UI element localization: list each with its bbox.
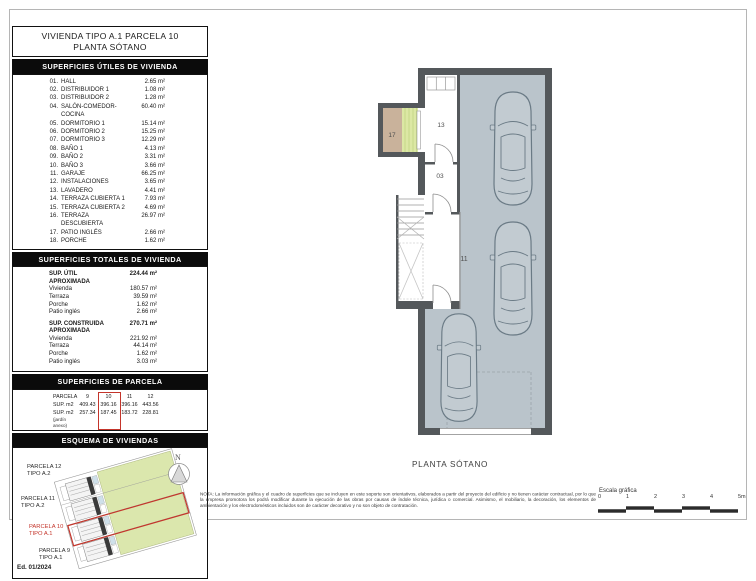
surface-row-value: 7.93 m² xyxy=(129,195,165,203)
surface-row-label: DORMITORIO 2 xyxy=(61,128,129,136)
surface-row-value: 15.14 m² xyxy=(129,120,165,128)
surface-row-label: DORMITORIO 1 xyxy=(61,120,129,128)
surface-row: 16.TERRAZA DESCUBIERTA26.97 m² xyxy=(45,212,165,229)
surface-row: 01.HALL2.65 m² xyxy=(45,78,165,86)
scale-bar xyxy=(598,505,746,514)
scale-tick: 5m xyxy=(738,494,746,500)
laundry-fixture xyxy=(427,77,455,90)
scale-tick: 1 xyxy=(626,494,629,500)
surface-row-label: LAVADERO xyxy=(61,187,129,195)
total-sub-row: Porche1.62 m² xyxy=(49,351,157,359)
parcel-data-row: SUP. m2409.43396.16396.16443.56 xyxy=(53,401,207,409)
surface-row: 12.INSTALACIONES3.65 m² xyxy=(45,178,165,186)
surface-row: 10.BAÑO 33.66 m² xyxy=(45,162,165,170)
surface-row-label: BAÑO 2 xyxy=(61,153,129,161)
surface-row-number: 05. xyxy=(45,120,58,128)
surface-row-value: 60.40 m² xyxy=(129,103,165,120)
window xyxy=(417,111,421,149)
graphic-scale: Escala gráfica 012345m xyxy=(598,488,748,516)
surface-row: 18.PORCHE1.62 m² xyxy=(45,237,165,245)
surface-row-label: PORCHE xyxy=(61,237,129,245)
surface-row: 07.DORMITORIO 312.29 m² xyxy=(45,136,165,144)
scale-tick: 3 xyxy=(682,494,685,500)
total-sub-row: Terraza44.14 m² xyxy=(49,343,157,351)
room-11-label: 11 xyxy=(460,256,467,263)
surface-row-value: 4.41 m² xyxy=(129,187,165,195)
surface-row-value: 1.08 m² xyxy=(129,86,165,94)
parcel-value: 396.16 xyxy=(119,403,140,409)
parcel-value: 257.34 xyxy=(77,411,98,417)
laundry-strip-floor xyxy=(402,108,418,152)
total-group-header-row: SUP. ÚTIL APROXIMADA224.44 m² xyxy=(49,271,157,286)
parcel-12-label: PARCELA 12TIPO A.2 xyxy=(27,464,61,477)
left-panel: VIVIENDA TIPO A.1 PARCELA 10 PLANTA SÓTA… xyxy=(12,26,208,579)
highlighted-parcel-box xyxy=(98,392,121,430)
surface-row-number: 03. xyxy=(45,94,58,102)
stair-treads xyxy=(397,199,424,235)
surface-row: 08.BAÑO 14.13 m² xyxy=(45,145,165,153)
total-sub-row: Vivienda180.57 m² xyxy=(49,286,157,294)
surface-row-label: TERRAZA CUBIERTA 1 xyxy=(61,195,129,203)
scheme-header: ESQUEMA DE VIVIENDAS xyxy=(12,433,208,448)
surface-row-value: 3.31 m² xyxy=(129,153,165,161)
surface-row: 17.PATIO INGLÉS2.66 m² xyxy=(45,229,165,237)
surface-row: 13.LAVADERO4.41 m² xyxy=(45,187,165,195)
surface-row-value: 1.62 m² xyxy=(129,237,165,245)
surface-row-label: DISTRIBUIDOR 1 xyxy=(61,86,129,94)
patio-ingles-floor xyxy=(383,108,402,152)
surface-row-number: 12. xyxy=(45,178,58,186)
total-surfaces-table: SUP. ÚTIL APROXIMADA224.44 m²Vivienda180… xyxy=(12,266,208,372)
document-subtitle: PLANTA SÓTANO xyxy=(13,42,207,53)
stair-cross xyxy=(397,217,424,239)
parcel-11-label: PARCELA 11TIPO A.2 xyxy=(21,496,55,509)
surface-row-number: 17. xyxy=(45,229,58,237)
surface-row-number: 01. xyxy=(45,78,58,86)
parcel-value: 443.56 xyxy=(140,403,161,409)
total-sub-row: Patio inglés2.66 m² xyxy=(49,309,157,317)
surface-row-label: HALL xyxy=(61,78,129,86)
surface-row: 11.GARAJE66.25 m² xyxy=(45,170,165,178)
note-text: NOTA: La información gráfica y el cuadro… xyxy=(200,491,596,508)
surface-row: 04.SALÓN-COMEDOR-COCINA60.40 m² xyxy=(45,103,165,120)
surface-row: 02.DISTRIBUIDOR 11.08 m² xyxy=(45,86,165,94)
surface-row-label: DORMITORIO 3 xyxy=(61,136,129,144)
total-sub-row: Terraza39.59 m² xyxy=(49,294,157,302)
surface-row-number: 11. xyxy=(45,170,58,178)
parcel-data-row: SUP. m2(jardín anexo)257.34187.45183.722… xyxy=(53,409,207,430)
total-group: SUP. ÚTIL APROXIMADA224.44 m²Vivienda180… xyxy=(49,271,157,317)
useful-surfaces-header: SUPERFICIES ÚTILES DE VIVIENDA xyxy=(12,59,208,74)
surface-row-number: 10. xyxy=(45,162,58,170)
surface-row: 14.TERRAZA CUBIERTA 17.93 m² xyxy=(45,195,165,203)
surface-row-label: INSTALACIONES xyxy=(61,178,129,186)
surface-row-number: 13. xyxy=(45,187,58,195)
parcel-header-row: PARCELA9101112 xyxy=(53,393,207,401)
room-03-label: 03 xyxy=(436,173,444,180)
surface-row-number: 04. xyxy=(45,103,58,120)
floor-plan: 17 13 03 11 xyxy=(360,55,590,475)
room-17-label: 17 xyxy=(388,132,396,139)
title-block: VIVIENDA TIPO A.1 PARCELA 10 PLANTA SÓTA… xyxy=(12,26,208,57)
surface-row-label: PATIO INGLÉS xyxy=(61,229,129,237)
surface-row-value: 66.25 m² xyxy=(129,170,165,178)
room-13-label: 13 xyxy=(437,122,445,129)
surface-row: 15.TERRAZA CUBIERTA 24.69 m² xyxy=(45,204,165,212)
surface-row-label: TERRAZA DESCUBIERTA xyxy=(61,212,129,229)
surface-row: 09.BAÑO 23.31 m² xyxy=(45,153,165,161)
surface-row: 06.DORMITORIO 215.25 m² xyxy=(45,128,165,136)
surface-row-value: 4.69 m² xyxy=(129,204,165,212)
scale-tick: 0 xyxy=(598,494,601,500)
north-label: N xyxy=(175,453,181,462)
total-sub-row: Porche1.62 m² xyxy=(49,302,157,310)
surface-row-number: 14. xyxy=(45,195,58,203)
surface-row: 03.DISTRIBUIDOR 21.28 m² xyxy=(45,94,165,102)
surface-row-number: 18. xyxy=(45,237,58,245)
surface-row-number: 16. xyxy=(45,212,58,229)
parcel-number: 9 xyxy=(77,395,98,401)
scale-ticks: 012345m xyxy=(598,494,748,501)
parcel-9-label: PARCELA 9TIPO A.1 xyxy=(39,548,70,561)
surface-row-label: TERRAZA CUBIERTA 2 xyxy=(61,204,129,212)
scale-tick: 2 xyxy=(654,494,657,500)
parcel-number: 12 xyxy=(140,395,161,401)
surface-row-value: 3.66 m² xyxy=(129,162,165,170)
surface-row-number: 02. xyxy=(45,86,58,94)
door-swings xyxy=(433,144,453,303)
surface-row-label: BAÑO 3 xyxy=(61,162,129,170)
surface-row-number: 09. xyxy=(45,153,58,161)
parcel-number: 11 xyxy=(119,395,140,401)
surface-row-number: 15. xyxy=(45,204,58,212)
parcel-surfaces-header: SUPERFICIES DE PARCELA xyxy=(12,374,208,389)
garage-door xyxy=(440,428,531,435)
parcel-table: PARCELA9101112SUP. m2409.43396.16396.164… xyxy=(12,389,208,431)
parcel-value: 228.81 xyxy=(140,411,161,417)
document-title: VIVIENDA TIPO A.1 PARCELA 10 xyxy=(13,31,207,42)
surface-row-label: SALÓN-COMEDOR-COCINA xyxy=(61,103,129,120)
useful-surfaces-table: 01.HALL2.65 m²02.DISTRIBUIDOR 11.08 m²03… xyxy=(12,74,208,250)
car-3 xyxy=(437,314,480,422)
total-group-header-row: SUP. CONSTRUIDA APROXIMADA270.71 m² xyxy=(49,321,157,336)
surface-row-number: 08. xyxy=(45,145,58,153)
surface-row-value: 4.13 m² xyxy=(129,145,165,153)
surface-row: 05.DORMITORIO 115.14 m² xyxy=(45,120,165,128)
surface-row-label: GARAJE xyxy=(61,170,129,178)
scale-tick: 4 xyxy=(710,494,713,500)
surface-row-label: BAÑO 1 xyxy=(61,145,129,153)
surface-row-value: 2.66 m² xyxy=(129,229,165,237)
car-2 xyxy=(490,222,536,335)
surface-row-value: 15.25 m² xyxy=(129,128,165,136)
surface-row-label: DISTRIBUIDOR 2 xyxy=(61,94,129,102)
edition-date: Ed. 01/2024 xyxy=(17,564,51,571)
note-block: NOTA: La información gráfica y el cuadro… xyxy=(200,491,596,517)
total-sub-row: Patio inglés3.03 m² xyxy=(49,359,157,367)
car-1 xyxy=(490,92,536,205)
parcel-value: 409.43 xyxy=(77,403,98,409)
total-surfaces-header: SUPERFICIES TOTALES DE VIVIENDA xyxy=(12,252,208,267)
surface-row-value: 3.65 m² xyxy=(129,178,165,186)
surface-row-value: 2.65 m² xyxy=(129,78,165,86)
plan-caption: PLANTA SÓTANO xyxy=(412,460,488,469)
surface-row-value: 26.97 m² xyxy=(129,212,165,229)
total-sub-row: Vivienda221.92 m² xyxy=(49,336,157,344)
parcel-value: 183.72 xyxy=(119,411,140,417)
surface-row-number: 07. xyxy=(45,136,58,144)
parcel-table-rows: PARCELA9101112SUP. m2409.43396.16396.164… xyxy=(53,393,207,430)
total-group: SUP. CONSTRUIDA APROXIMADA270.71 m²Vivie… xyxy=(49,321,157,367)
scheme-box: N PARCELA 12TIPO A.2 PARCELA 11TIPO A.2 … xyxy=(12,447,208,579)
surface-row-number: 06. xyxy=(45,128,58,136)
parcel-10-label: PARCELA 10TIPO A.1 xyxy=(29,524,63,537)
surface-row-value: 1.28 m² xyxy=(129,94,165,102)
surface-row-value: 12.29 m² xyxy=(129,136,165,144)
